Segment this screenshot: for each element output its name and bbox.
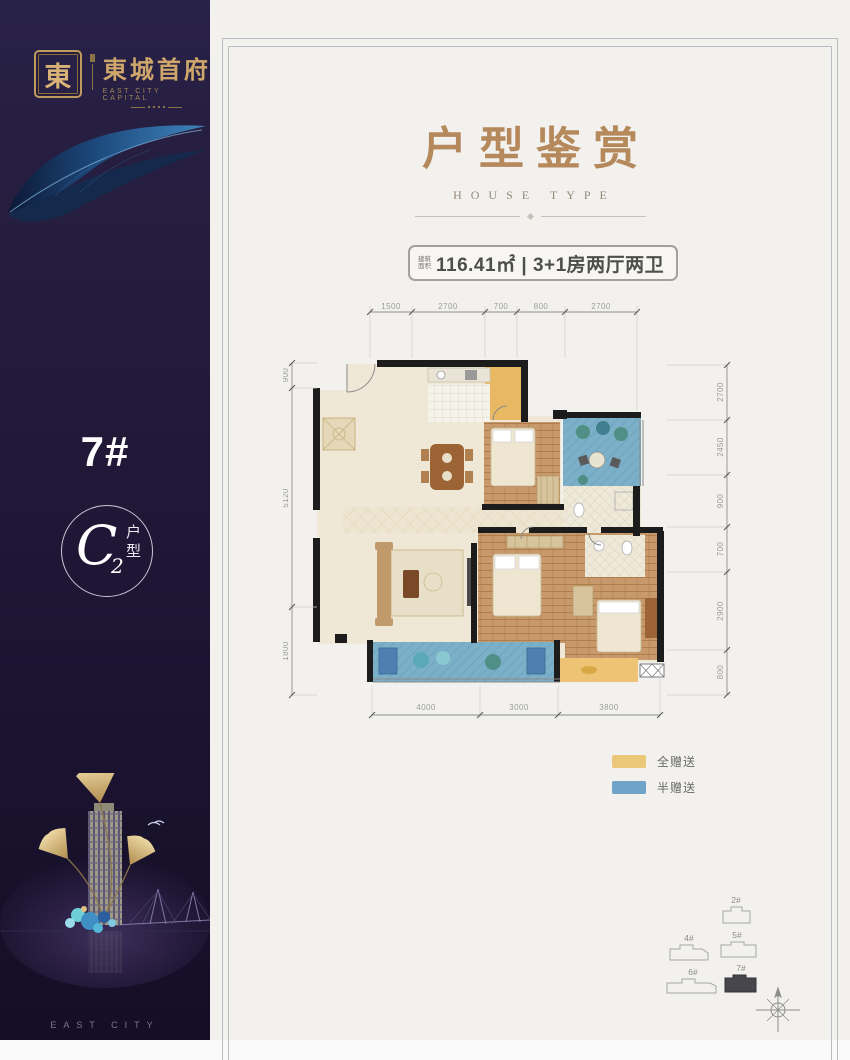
legend-label-full: 全赠送	[657, 753, 696, 770]
building-number: 7#	[0, 428, 210, 476]
unit-number: 2	[111, 554, 124, 578]
seal-character: 東	[44, 55, 71, 94]
site-building-5	[721, 942, 756, 957]
tower-illustration	[88, 803, 122, 973]
area-badge: 建筑 面积 116.41㎡ | 3+1房两厅两卫	[408, 245, 678, 281]
dim-bottom-1: 4000	[416, 703, 436, 712]
dim-right-3: 900	[716, 494, 725, 509]
dim-top-3: 700	[494, 302, 509, 311]
gift-area-full-top	[485, 367, 522, 420]
site-building-4	[670, 945, 708, 960]
site-building-6	[667, 979, 716, 993]
bird-icon	[148, 821, 164, 825]
feather-icon	[0, 100, 210, 255]
building-night-illustration	[0, 773, 210, 1008]
dim-bottom-2: 3000	[509, 703, 529, 712]
room-kitchen	[428, 384, 490, 422]
site-label-2: 2#	[731, 895, 741, 905]
legend-item-full-gift: 全赠送	[612, 753, 696, 770]
gift-legend: 全赠送 半赠送	[612, 753, 696, 796]
brochure-page: 户型鉴赏 HOUSE TYPE 建筑 面积 116.41㎡ | 3+1房两厅两卫	[210, 0, 850, 1040]
dim-right-2: 2450	[716, 437, 725, 457]
site-label-4: 4#	[684, 933, 694, 943]
unit-type-emblem: C 2 户 型	[61, 505, 153, 597]
dim-left-3: 1800	[283, 641, 290, 661]
brand-name: 東城首府	[103, 50, 211, 85]
compass-icon	[756, 988, 800, 1032]
dim-right-1: 2700	[716, 382, 725, 402]
badge-prefix-line1: 建筑	[418, 256, 431, 263]
unit-label-bottom: 型	[126, 543, 141, 562]
room-bathroom-2	[585, 535, 645, 577]
site-label-6: 6#	[688, 967, 698, 977]
legend-item-half-gift: 半赠送	[612, 779, 696, 796]
dim-top-4: 800	[534, 302, 549, 311]
area-and-layout-text: 116.41㎡ | 3+1房两厅两卫	[436, 250, 664, 277]
logo-divider	[89, 54, 96, 90]
page-title: 户型鉴赏	[210, 112, 850, 177]
dim-right-6: 800	[716, 665, 725, 680]
dim-left-1: 900	[283, 368, 290, 383]
site-building-7-highlighted	[725, 975, 756, 992]
legend-swatch-half	[612, 781, 646, 794]
floorplan-diagram: 1500 2700 700 800 2700 4000 3000 3800 27…	[283, 298, 735, 740]
dim-left-2: 5120	[283, 488, 290, 508]
site-label-7: 7#	[736, 963, 746, 973]
dim-right-5: 2900	[716, 601, 725, 621]
dim-bottom-3: 3800	[599, 703, 619, 712]
gift-area-full-bottom	[560, 658, 638, 682]
site-label-5: 5#	[732, 930, 742, 940]
dim-top-2: 2700	[438, 302, 458, 311]
brand-seal-icon: 東	[34, 50, 82, 98]
dim-top-1: 1500	[381, 302, 401, 311]
site-plan: 2# 4# 5# 6# 7#	[655, 885, 805, 1035]
unit-label-top: 户	[126, 524, 141, 543]
site-building-2	[723, 907, 750, 923]
sidebar: 東 東城首府 EAST CITY CAPITAL 7#	[0, 0, 210, 1040]
legend-label-half: 半赠送	[657, 779, 696, 796]
dim-top-5: 2700	[591, 302, 611, 311]
badge-prefix-line2: 面积	[418, 263, 431, 270]
dim-right-4: 700	[716, 542, 725, 557]
title-divider	[210, 214, 850, 219]
legend-swatch-full	[612, 755, 646, 768]
sidebar-footer-text: EAST CITY	[0, 1020, 210, 1030]
page-subtitle: HOUSE TYPE	[210, 188, 850, 203]
